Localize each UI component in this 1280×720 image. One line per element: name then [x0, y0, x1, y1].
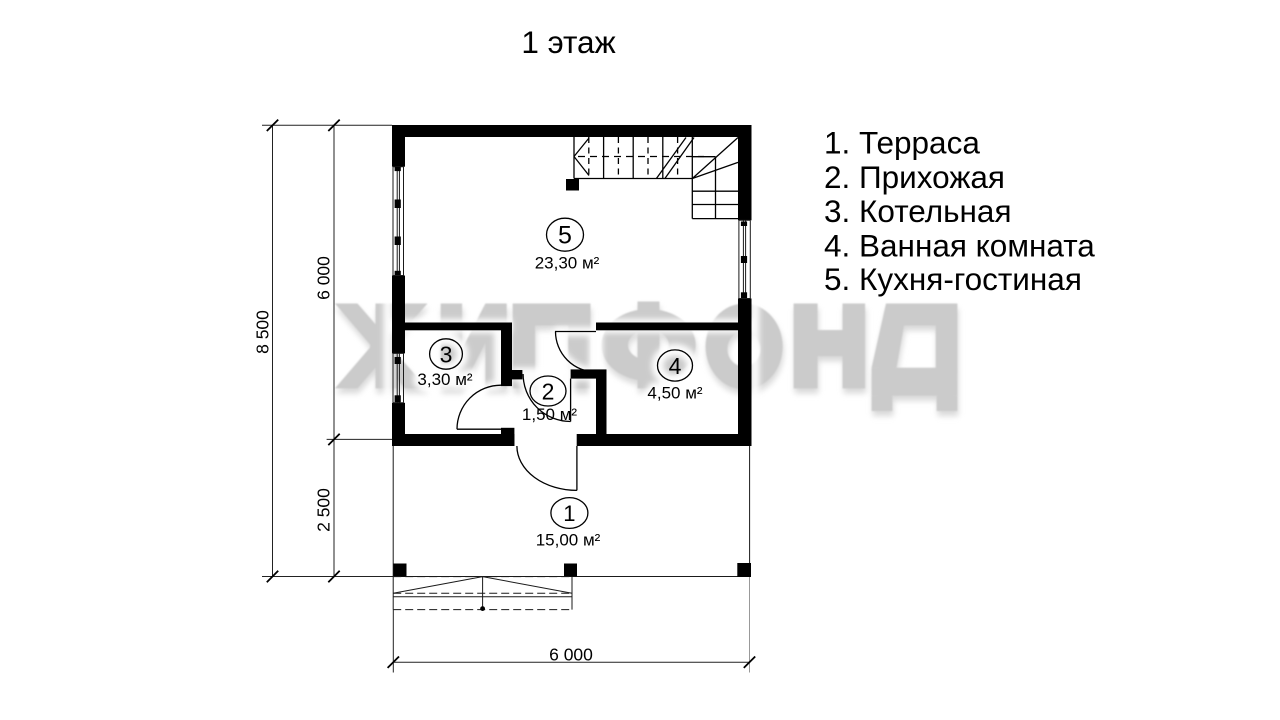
- svg-text:5: 5: [558, 222, 572, 250]
- svg-text:3,30 м²: 3,30 м²: [417, 370, 472, 389]
- svg-text:8 500: 8 500: [253, 310, 273, 354]
- svg-text:4. Ванная комната: 4. Ванная комната: [824, 227, 1095, 263]
- svg-text:1,50 м²: 1,50 м²: [522, 405, 577, 424]
- svg-text:6 000: 6 000: [314, 256, 334, 300]
- svg-text:5. Кухня-гостиная: 5. Кухня-гостиная: [824, 261, 1082, 297]
- svg-text:1 этаж: 1 этаж: [521, 24, 615, 60]
- svg-text:4: 4: [669, 353, 682, 379]
- svg-text:1. Терраса: 1. Терраса: [824, 125, 980, 161]
- svg-text:4,50 м²: 4,50 м²: [647, 384, 702, 403]
- svg-text:2: 2: [542, 379, 555, 405]
- svg-text:2 500: 2 500: [314, 488, 334, 532]
- svg-text:3. Котельная: 3. Котельная: [824, 193, 1012, 229]
- svg-text:15,00 м²: 15,00 м²: [536, 531, 601, 550]
- svg-text:6 000: 6 000: [549, 645, 593, 665]
- svg-text:23,30 м²: 23,30 м²: [535, 254, 600, 273]
- svg-text:1: 1: [563, 501, 575, 526]
- svg-text:3: 3: [440, 342, 453, 368]
- svg-text:2. Прихожая: 2. Прихожая: [824, 159, 1005, 195]
